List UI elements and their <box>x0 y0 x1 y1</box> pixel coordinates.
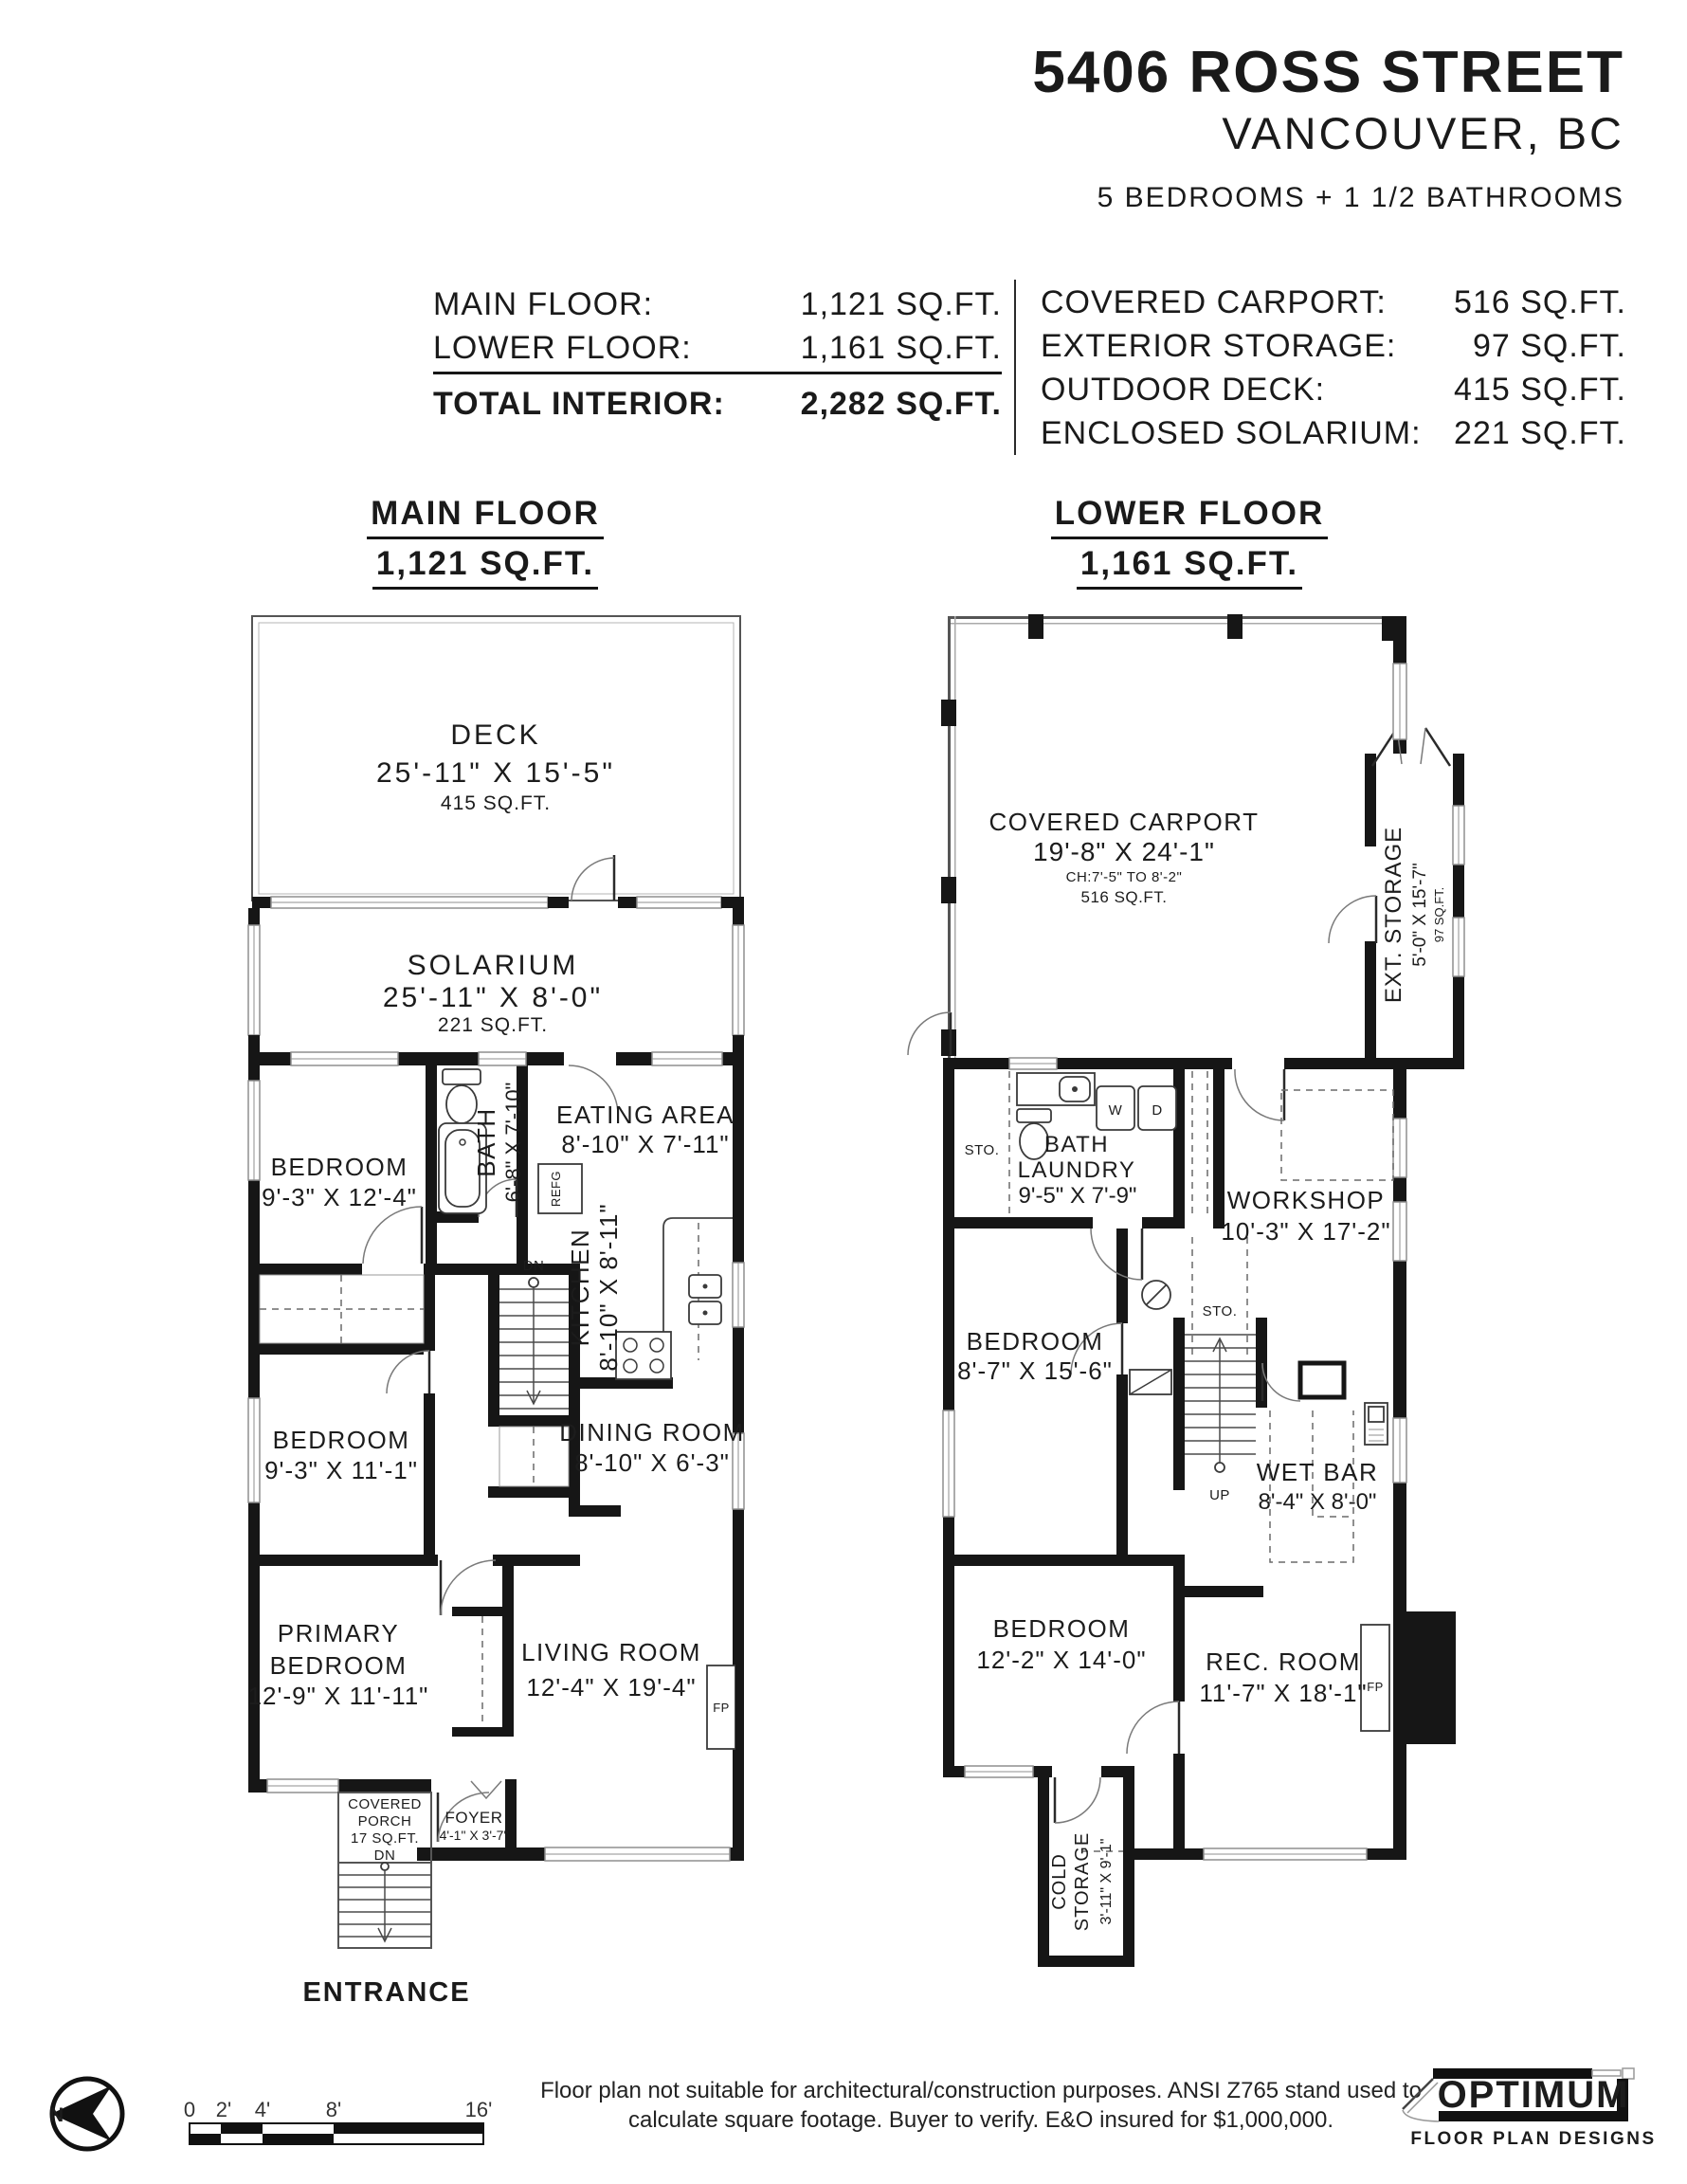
room-label: WET BAR <box>1257 1458 1378 1486</box>
disclaimer: Floor plan not suitable for architectura… <box>526 2076 1436 2135</box>
page-title: 5406 ROSS STREET <box>1032 40 1624 106</box>
room-label: STORAGE <box>1072 1832 1093 1931</box>
scale-bar: 0 2' 4' 8' 16' <box>175 2090 498 2157</box>
stairs-up <box>1185 1335 1256 1472</box>
room-dims: 8'-7" X 15'-6" <box>957 1356 1113 1385</box>
lower-floor-title: LOWER FLOOR 1,161 SQ.FT. <box>1047 495 1332 595</box>
area-table-right: COVERED CARPORT: 516 SQ.FT. EXTERIOR STO… <box>1041 281 1626 455</box>
room-dims: 10'-3" X 17'-2" <box>1221 1217 1390 1246</box>
room-label: BEDROOM <box>273 1426 410 1454</box>
room-sqft: 97 SQ.FT. <box>1432 887 1446 943</box>
room-dims: 11'-7" X 18'-1" <box>1199 1679 1367 1707</box>
scale-tick: 0 <box>184 2098 195 2121</box>
main-floor-title-text: MAIN FLOOR <box>367 495 604 539</box>
lower-floor-plan: COVERED CARPORT 19'-8" X 24'-1" CH:7'-5"… <box>905 607 1474 1981</box>
optimum-logo: OPTIMUM FLOOR PLAN DESIGNS <box>1379 2055 1663 2159</box>
lower-floor-title-text: LOWER FLOOR <box>1051 495 1328 539</box>
table-divider <box>1014 280 1016 455</box>
porch-label: COVERED <box>348 1796 422 1812</box>
room-label: BEDROOM <box>270 1651 408 1680</box>
room-label: COVERED CARPORT <box>989 808 1260 836</box>
area-value: 516 SQ.FT. <box>1454 281 1626 324</box>
room-ceiling-height: CH:7'-5" TO 8'-2" <box>1066 869 1183 885</box>
room-label: PRIMARY <box>278 1619 400 1647</box>
fridge-label: REFG <box>549 1171 563 1207</box>
area-label: COVERED CARPORT: <box>1041 281 1387 324</box>
stairs-down <box>499 1278 569 1409</box>
area-table-left: MAIN FLOOR: 1,121 SQ.FT. LOWER FLOOR: 1,… <box>433 282 1002 426</box>
table-row: OUTDOOR DECK: 415 SQ.FT. <box>1041 368 1626 411</box>
disclaimer-line: Floor plan not suitable for architectura… <box>526 2076 1436 2105</box>
entrance-label: ENTRANCE <box>301 1977 472 2009</box>
stairs-up-label: UP <box>1209 1487 1230 1503</box>
room-dims: 6'-8" X 7'-10" <box>501 1083 525 1203</box>
room-dims: 8'-10" X 7'-11" <box>561 1130 729 1158</box>
room-dims: 9'-3" X 12'-4" <box>262 1183 417 1211</box>
fireplace-label: FP <box>713 1701 730 1715</box>
storage-label: STO. <box>1203 1303 1238 1319</box>
fireplace <box>1361 1625 1389 1731</box>
stove-icon <box>616 1332 671 1379</box>
main-floor-sqft: 1,121 SQ.FT. <box>372 545 598 590</box>
room-dims: 9'-3" X 11'-1" <box>264 1456 418 1484</box>
room-label: BATH <box>1044 1132 1109 1157</box>
room-label: BATH <box>472 1107 500 1176</box>
scale-tick: 8' <box>326 2098 341 2121</box>
page-subtitle: VANCOUVER, BC <box>1032 106 1624 161</box>
north-arrow-icon: N <box>36 2065 140 2169</box>
room-sqft: 221 SQ.FT. <box>438 1014 548 1036</box>
vanity-sink-icon <box>1017 1073 1095 1105</box>
furnace-closet <box>1300 1363 1344 1397</box>
area-label: LOWER FLOOR: <box>433 326 692 370</box>
room-sqft: 516 SQ.FT. <box>1081 888 1168 906</box>
porch-label: PORCH <box>358 1813 412 1829</box>
room-dims: 8'-10" X 8'-11" <box>594 1203 623 1371</box>
table-row: LOWER FLOOR: 1,161 SQ.FT. <box>433 326 1002 374</box>
disclaimer-line: calculate square footage. Buyer to verif… <box>526 2105 1436 2135</box>
room-label: SOLARIUM <box>408 950 579 981</box>
room-label: BEDROOM <box>967 1327 1104 1356</box>
area-value: 1,161 SQ.FT. <box>801 326 1002 370</box>
wetbar-sink-icon <box>1365 1403 1388 1445</box>
room-dims: 25'-11" X 8'-0" <box>383 982 603 1013</box>
room-dims: 12'-2" X 14'-0" <box>976 1646 1146 1674</box>
table-row: EXTERIOR STORAGE: 97 SQ.FT. <box>1041 324 1626 368</box>
closet-shelf-icon <box>1130 1370 1171 1394</box>
room-dims: 19'-8" X 24'-1" <box>1033 837 1215 866</box>
area-value: 415 SQ.FT. <box>1454 368 1626 411</box>
main-floor-plan: DECK 25'-11" X 15'-5" 415 SQ.FT. SOLARIU… <box>242 602 749 1957</box>
table-row: MAIN FLOOR: 1,121 SQ.FT. <box>433 282 1002 326</box>
table-row-total: TOTAL INTERIOR: 2,282 SQ.FT. <box>433 374 1002 426</box>
fireplace-label: FP <box>1367 1680 1384 1694</box>
storage-label: STO. <box>965 1142 1000 1158</box>
room-label: COLD <box>1049 1853 1070 1910</box>
kitchen-sink-icon <box>689 1275 721 1324</box>
logo-tagline: FLOOR PLAN DESIGNS <box>1410 2129 1656 2149</box>
room-label: KITCHEN <box>566 1228 594 1347</box>
room-label: REC. ROOM <box>1206 1647 1361 1676</box>
porch-sqft: 17 SQ.FT. <box>351 1830 419 1847</box>
area-value: 97 SQ.FT. <box>1473 324 1626 368</box>
room-dims: 9'-5" X 7'-9" <box>1019 1183 1137 1209</box>
scale-tick: 4' <box>255 2098 270 2121</box>
room-label: EATING AREA <box>556 1101 735 1129</box>
room-label: BEDROOM <box>993 1614 1131 1643</box>
floor-plan-page: 5406 ROSS STREET VANCOUVER, BC 5 BEDROOM… <box>0 0 1687 2184</box>
room-dims: 25'-11" X 15'-5" <box>376 757 615 789</box>
area-label: EXTERIOR STORAGE: <box>1041 324 1396 368</box>
table-row: ENCLOSED SOLARIUM: 221 SQ.FT. <box>1041 411 1626 455</box>
room-label: BEDROOM <box>271 1153 408 1181</box>
room-dims: 5'-0" X 15'-7" <box>1410 863 1430 966</box>
area-label: OUTDOOR DECK: <box>1041 368 1325 411</box>
logo-name: OPTIMUM <box>1438 2074 1630 2116</box>
beds-baths: 5 BEDROOMS + 1 1/2 BATHROOMS <box>1032 182 1624 214</box>
area-value: 221 SQ.FT. <box>1454 411 1626 455</box>
room-dims: 12'-9" X 11'-11" <box>248 1682 429 1710</box>
area-value: 1,121 SQ.FT. <box>801 282 1002 326</box>
area-label: ENCLOSED SOLARIUM: <box>1041 411 1422 455</box>
water-heater-icon <box>1142 1281 1170 1309</box>
area-value: 2,282 SQ.FT. <box>801 382 1002 426</box>
area-label: TOTAL INTERIOR: <box>433 382 725 426</box>
room-label: WORKSHOP <box>1227 1186 1386 1214</box>
lower-floor-sqft: 1,161 SQ.FT. <box>1077 545 1302 590</box>
room-label: FOYER <box>444 1809 502 1827</box>
entry-stairs <box>338 1863 431 1948</box>
porch-dn-label: DN <box>374 1847 396 1864</box>
north-label: N <box>49 2104 63 2126</box>
stairs-dn-label: DN <box>523 1258 545 1274</box>
room-dims: 8'-10" X 6'-3" <box>574 1448 730 1477</box>
room-dims: 12'-4" X 19'-4" <box>526 1673 696 1702</box>
header: 5406 ROSS STREET VANCOUVER, BC 5 BEDROOM… <box>1032 40 1624 214</box>
main-floor-title: MAIN FLOOR 1,121 SQ.FT. <box>343 495 627 595</box>
table-row: COVERED CARPORT: 516 SQ.FT. <box>1041 281 1626 324</box>
room-dims: 3'-11" X 9'-1" <box>1098 1839 1115 1925</box>
room-dims: 4'-1" X 3'-7" <box>440 1828 509 1843</box>
room-label: EXT. STORAGE <box>1381 827 1406 1003</box>
room-label: LIVING ROOM <box>521 1638 701 1666</box>
room-sqft: 415 SQ.FT. <box>441 792 551 814</box>
dryer-label: D <box>1152 1102 1162 1119</box>
room-label: DINING ROOM <box>559 1418 745 1447</box>
room-label: LAUNDRY <box>1018 1157 1136 1183</box>
room-label: DECK <box>450 719 540 751</box>
scale-tick: 2' <box>216 2098 231 2121</box>
room-dims: 8'-4" X 8'-0" <box>1259 1489 1377 1515</box>
washer-label: W <box>1109 1102 1123 1119</box>
area-label: MAIN FLOOR: <box>433 282 653 326</box>
scale-tick: 16' <box>465 2098 493 2121</box>
